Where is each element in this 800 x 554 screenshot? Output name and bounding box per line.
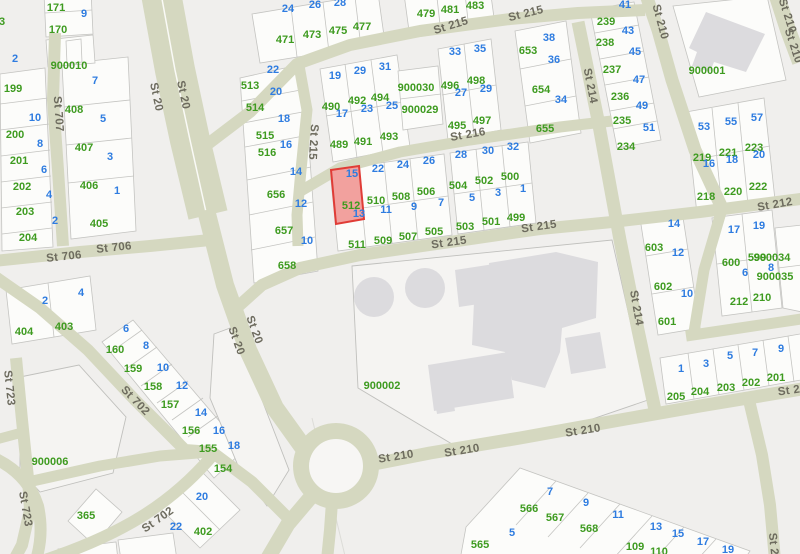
lot-number-label: 513	[241, 80, 259, 92]
address-number-label: 1	[114, 185, 120, 197]
address-number-label: 22	[267, 64, 279, 76]
address-number-label: 11	[612, 509, 624, 521]
lot-number-label: 239	[597, 16, 615, 28]
address-number-label: 45	[629, 46, 641, 58]
address-number-label: 16	[703, 158, 715, 170]
lot-number-label: 900030	[398, 82, 435, 94]
lot-number-label: 220	[724, 186, 742, 198]
lot-number-label: 154	[214, 463, 233, 475]
lot-number-label: 234	[617, 141, 636, 153]
address-number-label: 22	[170, 521, 182, 533]
address-number-label: 47	[633, 74, 645, 86]
lot-number-label: 170	[49, 24, 67, 36]
lot-number-label: 506	[417, 186, 435, 198]
address-number-label: 12	[295, 198, 307, 210]
address-number-label: 26	[309, 0, 321, 11]
lot-number-label: 204	[19, 232, 38, 244]
lot-number-label: 501	[482, 216, 500, 228]
address-number-label: 20	[196, 491, 208, 503]
building-tank-2	[405, 268, 445, 308]
lot-number-label: 601	[658, 316, 676, 328]
lot-number-label: 203	[717, 382, 735, 394]
lot-number-label: 159	[124, 363, 142, 375]
lot-number-label: 237	[603, 64, 621, 76]
lot-number-label: 491	[354, 136, 372, 148]
address-number-label: 14	[290, 166, 303, 178]
address-number-label: 9	[81, 8, 87, 20]
address-number-label: 49	[636, 100, 648, 112]
lot-number-label: 514	[246, 102, 265, 114]
street-name-label: St 215	[306, 124, 320, 161]
lot-number-label: 602	[654, 281, 672, 293]
lot-number-label: 508	[392, 191, 410, 203]
address-number-label: 12	[672, 247, 684, 259]
lot-number-label: 160	[106, 344, 124, 356]
address-number-label: 12	[176, 380, 188, 392]
address-number-label: 3	[703, 358, 709, 370]
address-number-label: 1	[520, 183, 526, 195]
address-number-label: 19	[753, 220, 765, 232]
lot-number-label: 471	[276, 34, 294, 46]
address-number-label: 14	[668, 218, 681, 230]
address-number-label: 22	[372, 163, 384, 175]
address-number-label: 7	[752, 347, 758, 359]
address-number-label: 9	[778, 343, 784, 355]
address-number-label: 23	[361, 103, 373, 115]
lot-number-label: 505	[425, 226, 443, 238]
lot-number-label: 653	[519, 45, 537, 57]
lot-number-label: 489	[330, 139, 348, 151]
address-number-label: 8	[768, 262, 774, 274]
lot-number-label: 202	[13, 181, 31, 193]
lot-number-label: 110	[650, 546, 668, 554]
address-number-label: 34	[555, 94, 568, 106]
address-number-label: 28	[455, 149, 467, 161]
lot-number-label: 200	[6, 129, 24, 141]
lot-number-label: 603	[645, 242, 663, 254]
address-number-label: 4	[78, 287, 85, 299]
lot-number-label: 499	[507, 212, 525, 224]
lot-number-label: 222	[749, 181, 767, 193]
address-number-label: 8	[37, 138, 43, 150]
address-number-label: 18	[726, 154, 738, 166]
building-tank-1	[354, 277, 394, 317]
lot-number-label: 202	[742, 377, 760, 389]
address-number-label: 11	[380, 204, 392, 216]
lot-number-label: 502	[475, 175, 493, 187]
lot-number-label: 481	[441, 4, 459, 16]
lot-number-label: 504	[449, 180, 468, 192]
address-number-label: 7	[92, 75, 98, 87]
lot-number-label: 500	[501, 171, 519, 183]
lot-number-label: 900006	[32, 456, 69, 468]
address-number-label: 9	[411, 201, 417, 213]
address-number-label: 43	[622, 25, 634, 37]
address-number-label: 3	[107, 151, 113, 163]
address-number-label: 24	[397, 159, 410, 171]
address-number-label: 38	[543, 32, 555, 44]
lot-number-label: 511	[348, 239, 366, 251]
address-number-label: 13	[650, 521, 662, 533]
lot-number-label: 407	[75, 142, 93, 154]
lot-number-label: 238	[596, 37, 614, 49]
address-number-label: 5	[469, 192, 475, 204]
address-number-label: 53	[698, 121, 710, 133]
parcel-block-900029-900030[interactable]	[398, 66, 443, 130]
lot-number-label: 3	[0, 16, 5, 28]
address-number-label: 24	[282, 3, 295, 15]
lot-number-label: 900002	[364, 380, 401, 392]
lot-number-label: 900029	[402, 104, 439, 116]
lot-number-label: 404	[15, 326, 34, 338]
address-number-label: 19	[722, 544, 734, 554]
map-canvas[interactable]: St 215St 215St 215St 215St 215St 216St 2…	[0, 0, 800, 554]
lot-number-label: 408	[65, 104, 83, 116]
lot-number-label: 406	[80, 180, 98, 192]
lot-number-label: 495	[448, 120, 466, 132]
lot-number-label: 479	[417, 8, 435, 20]
address-number-label: 57	[751, 112, 763, 124]
address-number-label: 7	[438, 197, 444, 209]
address-number-label: 18	[228, 440, 240, 452]
address-number-label: 1	[678, 363, 684, 375]
lot-number-label: 900010	[51, 60, 88, 72]
lot-number-label: 158	[144, 381, 162, 393]
lot-number-label: 503	[456, 221, 474, 233]
lot-number-label: 236	[611, 91, 629, 103]
address-number-label: 8	[143, 340, 149, 352]
address-number-label: 5	[727, 350, 733, 362]
address-number-label: 18	[278, 113, 290, 125]
lot-number-label: 156	[182, 425, 200, 437]
address-number-label: 3	[495, 187, 501, 199]
lot-number-label: 658	[278, 260, 296, 272]
lot-number-label: 568	[580, 523, 598, 535]
lot-number-label: 900035	[757, 271, 794, 283]
lot-number-label: 656	[267, 189, 285, 201]
address-number-label: 29	[480, 83, 492, 95]
address-number-label: 6	[742, 267, 748, 279]
address-number-label: 20	[270, 86, 282, 98]
lot-number-label: 235	[613, 115, 631, 127]
lot-number-label: 402	[194, 526, 212, 538]
lot-number-label: 403	[55, 321, 73, 333]
lot-number-label: 515	[256, 130, 274, 142]
address-number-label: 9	[583, 497, 589, 509]
address-number-label: 28	[334, 0, 346, 9]
lot-number-label: 654	[532, 84, 551, 96]
address-number-label: 19	[329, 70, 341, 82]
lot-number-label: 477	[353, 21, 371, 33]
address-number-label: 14	[195, 407, 208, 419]
address-number-label: 5	[100, 113, 106, 125]
street-name-label: St 2	[766, 532, 780, 554]
address-number-label: 13	[353, 208, 365, 220]
lot-number-label: 210	[753, 292, 771, 304]
lot-number-label: 405	[90, 218, 108, 230]
lot-number-label: 507	[399, 231, 417, 243]
address-number-label: 17	[336, 108, 348, 120]
lot-number-label: 516	[258, 147, 276, 159]
lot-number-label: 204	[691, 386, 710, 398]
address-number-label: 35	[474, 43, 486, 55]
roundabout-center	[309, 439, 363, 493]
lot-number-label: 655	[536, 123, 554, 135]
address-number-label: 36	[548, 54, 560, 66]
lot-number-label: 218	[697, 191, 715, 203]
address-number-label: 7	[547, 486, 553, 498]
lot-number-label: 497	[473, 115, 491, 127]
address-number-label: 55	[725, 116, 737, 128]
lot-number-label: 565	[471, 539, 489, 551]
lot-number-label: 201	[767, 372, 785, 384]
building-annex-se	[565, 332, 606, 374]
address-number-label: 6	[41, 164, 47, 176]
lot-number-label: 199	[4, 83, 22, 95]
lot-number-label: 600	[722, 257, 740, 269]
address-number-label: 5	[509, 527, 515, 539]
lot-number-label: 509	[374, 235, 392, 247]
lot-number-label: 657	[275, 225, 293, 237]
address-number-label: 27	[455, 87, 467, 99]
address-number-label: 25	[386, 100, 398, 112]
address-number-label: 17	[697, 536, 709, 548]
address-number-label: 31	[379, 61, 391, 73]
address-number-label: 10	[157, 362, 169, 374]
address-number-label: 41	[619, 0, 631, 11]
lot-number-label: 493	[380, 131, 398, 143]
address-number-label: 10	[29, 112, 41, 124]
lot-number-label: 566	[520, 503, 538, 515]
address-number-label: 15	[672, 528, 684, 540]
parcel-block-405-408[interactable]	[62, 57, 136, 239]
address-number-label: 15	[346, 168, 358, 180]
lot-number-label: 157	[161, 399, 179, 411]
address-number-label: 17	[728, 224, 740, 236]
lot-number-label: 171	[47, 2, 65, 14]
address-number-label: 2	[52, 215, 58, 227]
lot-number-label: 205	[667, 391, 685, 403]
lot-number-label: 109	[626, 541, 644, 553]
lot-number-label: 365	[77, 510, 95, 522]
address-number-label: 51	[643, 122, 655, 134]
address-number-label: 2	[12, 53, 18, 65]
address-number-label: 10	[681, 288, 693, 300]
address-number-label: 16	[280, 139, 292, 151]
address-number-label: 20	[753, 149, 765, 161]
lot-number-label: 212	[730, 296, 748, 308]
lot-number-label: 473	[303, 29, 321, 41]
lot-number-label: 155	[199, 443, 217, 455]
lot-number-label: 900001	[689, 65, 726, 77]
address-number-label: 10	[301, 235, 313, 247]
lot-number-label: 475	[329, 25, 347, 37]
address-number-label: 33	[449, 46, 461, 58]
address-number-label: 26	[423, 155, 435, 167]
address-number-label: 29	[354, 65, 366, 77]
lot-number-label: 201	[10, 155, 28, 167]
road-roundabout-spur-s	[327, 502, 332, 554]
street-name-label: St 707	[51, 96, 65, 132]
address-number-label: 16	[213, 425, 225, 437]
address-number-label: 4	[46, 189, 53, 201]
address-number-label: 32	[507, 141, 519, 153]
address-number-label: 6	[123, 323, 129, 335]
address-number-label: 30	[482, 145, 494, 157]
lot-number-label: 483	[466, 0, 484, 12]
lot-number-label: 203	[16, 206, 34, 218]
lot-number-label: 567	[546, 512, 564, 524]
address-number-label: 2	[42, 295, 48, 307]
